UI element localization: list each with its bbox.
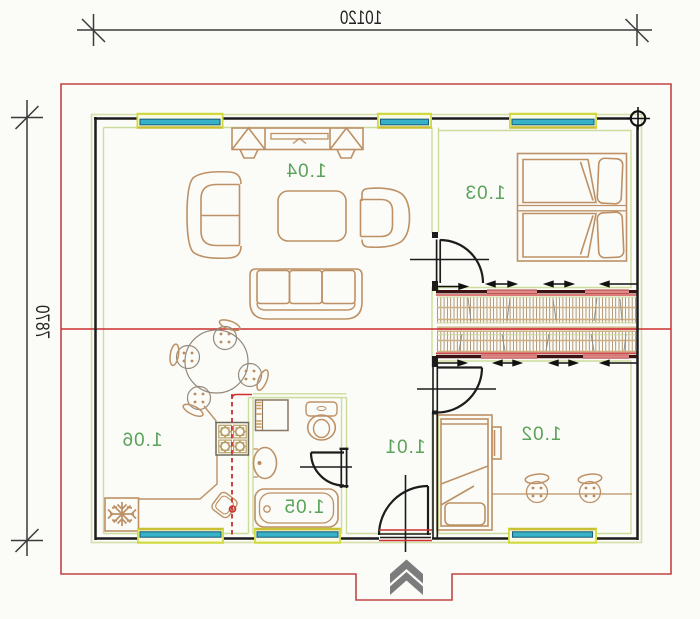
svg-text:10120: 10120 [340,6,382,28]
svg-text:7870: 7870 [32,305,54,339]
svg-text:1.03: 1.03 [465,183,506,204]
svg-text:1.05: 1.05 [284,497,325,518]
svg-text:1.01: 1.01 [385,437,426,458]
svg-text:1.04: 1.04 [286,161,327,182]
svg-text:1.02: 1.02 [521,424,562,445]
svg-text:1.06: 1.06 [122,430,163,451]
